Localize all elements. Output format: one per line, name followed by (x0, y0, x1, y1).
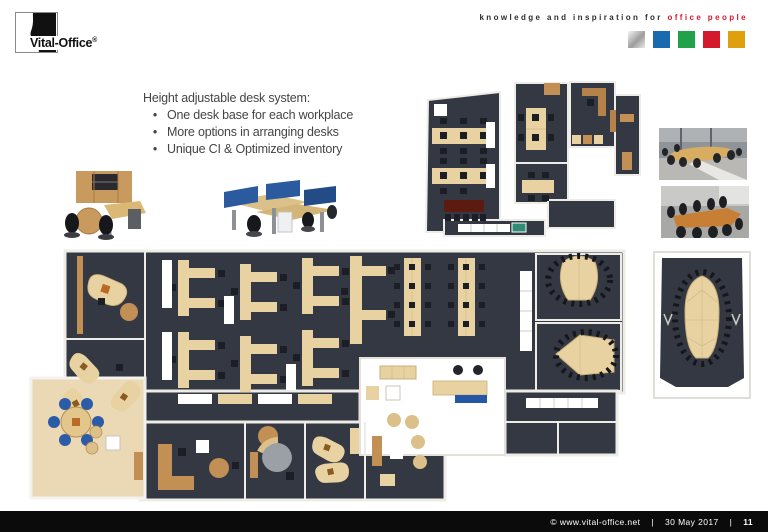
office-chair-icon (327, 205, 337, 219)
bench-desks-with-blue-screens-render (212, 168, 346, 240)
lounge-chair (387, 413, 401, 427)
bullet-item: •More options in arranging desks (143, 124, 433, 141)
lounge-chair (405, 415, 419, 429)
cabinet-row (458, 223, 526, 232)
office-floorplan-main (28, 246, 640, 506)
executive-desk-render (62, 165, 157, 241)
office-chair-icon (246, 215, 262, 237)
lounge-sofa (380, 366, 416, 379)
brand-square-silver (628, 31, 645, 48)
tagline: knowledge and inspiration for office peo… (479, 13, 748, 22)
footer-separator: | (730, 517, 733, 527)
brand-color-squares (628, 31, 745, 48)
footer-separator: | (651, 517, 654, 527)
slide-heading: Height adjustable desk system: (143, 90, 433, 107)
office-floorplan-upper (414, 74, 646, 242)
plant-icon (473, 365, 483, 375)
lounge-armchair (366, 386, 379, 400)
brand-square-blue (653, 31, 670, 48)
conference-room-photo-oval-table (659, 128, 747, 180)
footer-bar: © www.vital-office.net | 30 May 2017 | 1… (0, 511, 768, 532)
boat-shaped-conference-table (685, 276, 719, 358)
brand-square-amber (728, 31, 745, 48)
slide-copy: Height adjustable desk system: •One desk… (143, 90, 433, 158)
footer-date: 30 May 2017 (665, 517, 719, 527)
tagline-accent: office people (667, 13, 748, 22)
slide: { "colors": { "floor":"#343842","chair":… (0, 0, 768, 532)
plant-icon (453, 365, 463, 375)
footer-url: © www.vital-office.net (550, 517, 640, 527)
brand-square-red (703, 31, 720, 48)
tagline-plain: knowledge and inspiration for (479, 13, 667, 22)
lounge-table (386, 386, 400, 400)
corridor-cabinets (526, 398, 598, 408)
bullet-list: •One desk base for each workplace •More … (143, 107, 433, 158)
footer-page-number: 11 (743, 517, 753, 527)
cabinet-strip (520, 271, 532, 351)
bullet-item: •One desk base for each workplace (143, 107, 433, 124)
brand-square-green (678, 31, 695, 48)
conference-room-floorplan (652, 250, 752, 402)
conference-room-photo-long-table (661, 186, 749, 238)
bullet-item: •Unique CI & Optimized inventory (143, 141, 433, 158)
logo-wordmark: Vital-Office® (28, 36, 99, 50)
